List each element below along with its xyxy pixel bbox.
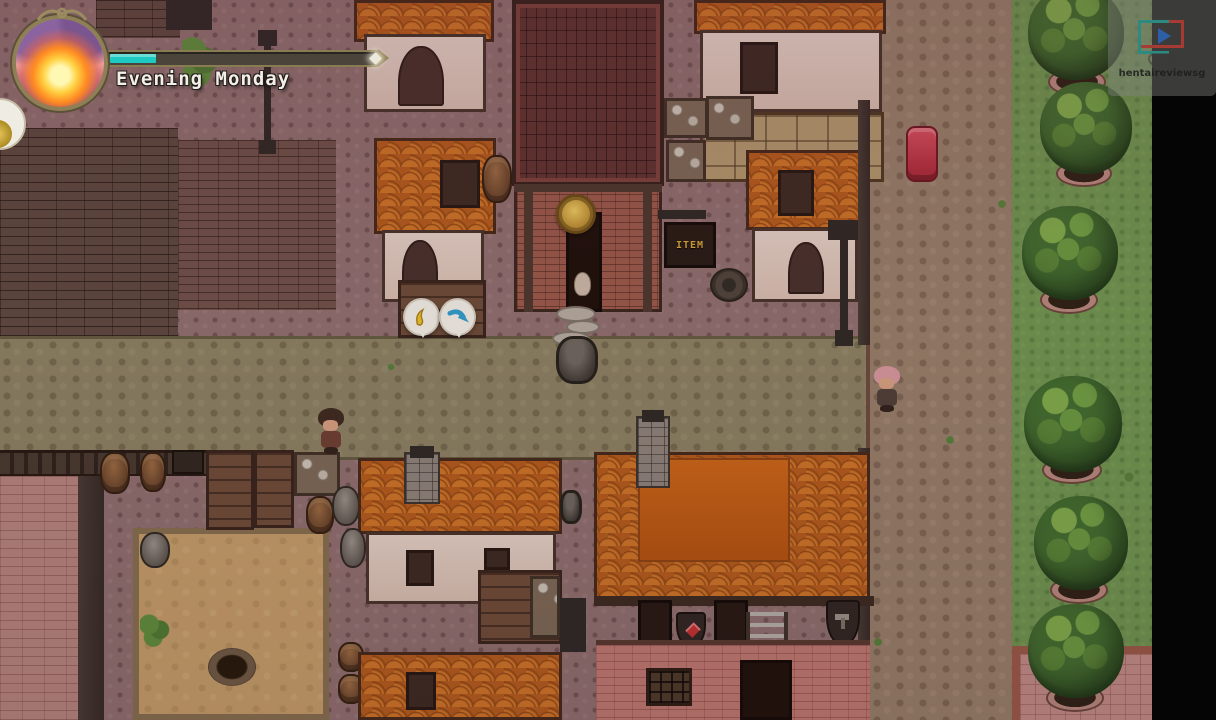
- dormer-window: [714, 600, 748, 644]
- lamppost-base: [835, 330, 853, 346]
- bubble-tail: [454, 329, 464, 343]
- game-screen: ITEM: [0, 0, 1216, 720]
- goods-crate: [706, 96, 754, 140]
- goods-crate: [294, 452, 340, 496]
- sickle-icon: [411, 306, 433, 328]
- npc-face: [879, 378, 894, 389]
- tree: [1028, 604, 1124, 698]
- play-triangle-icon: [1158, 28, 1171, 44]
- attic-window: [440, 160, 480, 208]
- timber-beam: [514, 184, 662, 192]
- hammer-icon: [832, 610, 854, 632]
- harvest-tool-bubble[interactable]: [403, 298, 440, 336]
- smithy-wall: [596, 640, 870, 720]
- villager-pink-hair[interactable]: [872, 366, 902, 414]
- alley-props: [560, 598, 586, 652]
- tree: [1034, 496, 1128, 590]
- barrel: [140, 452, 166, 492]
- goods-crate: [530, 576, 560, 638]
- red-handcart[interactable]: [906, 126, 938, 182]
- guild-hall-roof: [512, 0, 664, 186]
- dark-doorway-top: [166, 0, 212, 30]
- barrel: [100, 452, 130, 494]
- dark-wall-strip: [78, 476, 104, 720]
- arched-window: [398, 46, 444, 106]
- window: [484, 548, 510, 570]
- npc-body: [321, 431, 341, 448]
- bubble-tail: [418, 329, 428, 343]
- attic-window: [778, 170, 814, 216]
- brick-terrace: [178, 140, 336, 310]
- pink-brick-yard: [0, 476, 78, 720]
- window: [406, 550, 434, 586]
- weed-tuft: [944, 434, 956, 446]
- villager-brown-hair[interactable]: [316, 408, 346, 456]
- house-roof: [358, 652, 562, 720]
- goods-crate: [666, 140, 706, 182]
- time-of-day-label: Evening Monday: [116, 68, 290, 90]
- market-stall[interactable]: [206, 450, 254, 530]
- weed-tuft: [872, 636, 884, 648]
- time-progress-fill: [110, 54, 156, 63]
- barrel: [482, 155, 512, 203]
- chimney: [636, 416, 670, 488]
- sunset-clock-icon: [12, 15, 108, 111]
- edge-icon-core: [0, 120, 12, 148]
- barrel: [306, 496, 334, 534]
- weed-tuft: [386, 362, 396, 372]
- npc-body: [877, 389, 897, 406]
- chimney-cap: [410, 446, 434, 458]
- clock-ornament-icon: [34, 4, 90, 24]
- notice-board[interactable]: [172, 450, 204, 474]
- manhole-cover: [710, 268, 748, 302]
- barred-window: [646, 668, 692, 706]
- curved-arrow-icon: [446, 306, 470, 328]
- dormer-window: [406, 672, 436, 710]
- red-gem-icon: [685, 622, 701, 638]
- item-shop-sign-label: ITEM: [676, 240, 704, 251]
- tree: [1022, 206, 1118, 300]
- dormer-window: [638, 600, 672, 644]
- weed-tuft: [996, 198, 1008, 210]
- play-button-icon: [1138, 20, 1184, 48]
- sunset-clock-face: [16, 19, 104, 107]
- item-shop-sign[interactable]: ITEM: [664, 222, 716, 268]
- npc-face: [323, 420, 338, 431]
- retaining-wall: [858, 100, 870, 345]
- chimney-cap: [642, 410, 664, 422]
- timber-beam: [524, 184, 533, 312]
- doorway-villager[interactable]: [574, 272, 591, 296]
- arched-window: [788, 242, 824, 294]
- gamepad-icon: [1147, 50, 1177, 68]
- house-roof: [358, 458, 562, 534]
- well-pit: [208, 648, 256, 686]
- gold-emblem-sign: [556, 194, 596, 234]
- clay-pot: [340, 528, 366, 568]
- move-arrow-bubble[interactable]: [439, 298, 476, 336]
- dark-tiled-plaza: [0, 128, 178, 336]
- vertical-road[interactable]: [866, 0, 1012, 720]
- letterbox-right: [1152, 0, 1216, 720]
- stone-urn: [560, 490, 582, 524]
- market-stall[interactable]: [254, 450, 294, 528]
- npc-feet: [880, 405, 894, 412]
- horizontal-road[interactable]: [0, 336, 868, 460]
- weed-tuft: [1122, 470, 1136, 484]
- garden-plants: [140, 610, 170, 648]
- window: [740, 42, 778, 94]
- smithy-door[interactable]: [740, 660, 792, 720]
- lamppost-pole: [840, 238, 848, 334]
- sign-bracket: [658, 210, 706, 219]
- watermark: hentaireviewsg: [1108, 0, 1216, 96]
- clay-pot: [332, 486, 360, 526]
- house-roof: [694, 0, 886, 34]
- lamppost-head: [828, 220, 858, 240]
- npc-feet: [324, 447, 338, 454]
- clay-pot: [140, 532, 170, 568]
- chimney: [404, 452, 440, 504]
- time-progress-bar: [106, 50, 378, 67]
- lamppost-base: [259, 140, 276, 154]
- timber-beam: [643, 184, 652, 312]
- watermark-text: hentaireviewsg: [1108, 68, 1216, 79]
- goods-crate: [664, 98, 708, 138]
- tree: [1024, 376, 1122, 472]
- stone-urn: [556, 336, 598, 384]
